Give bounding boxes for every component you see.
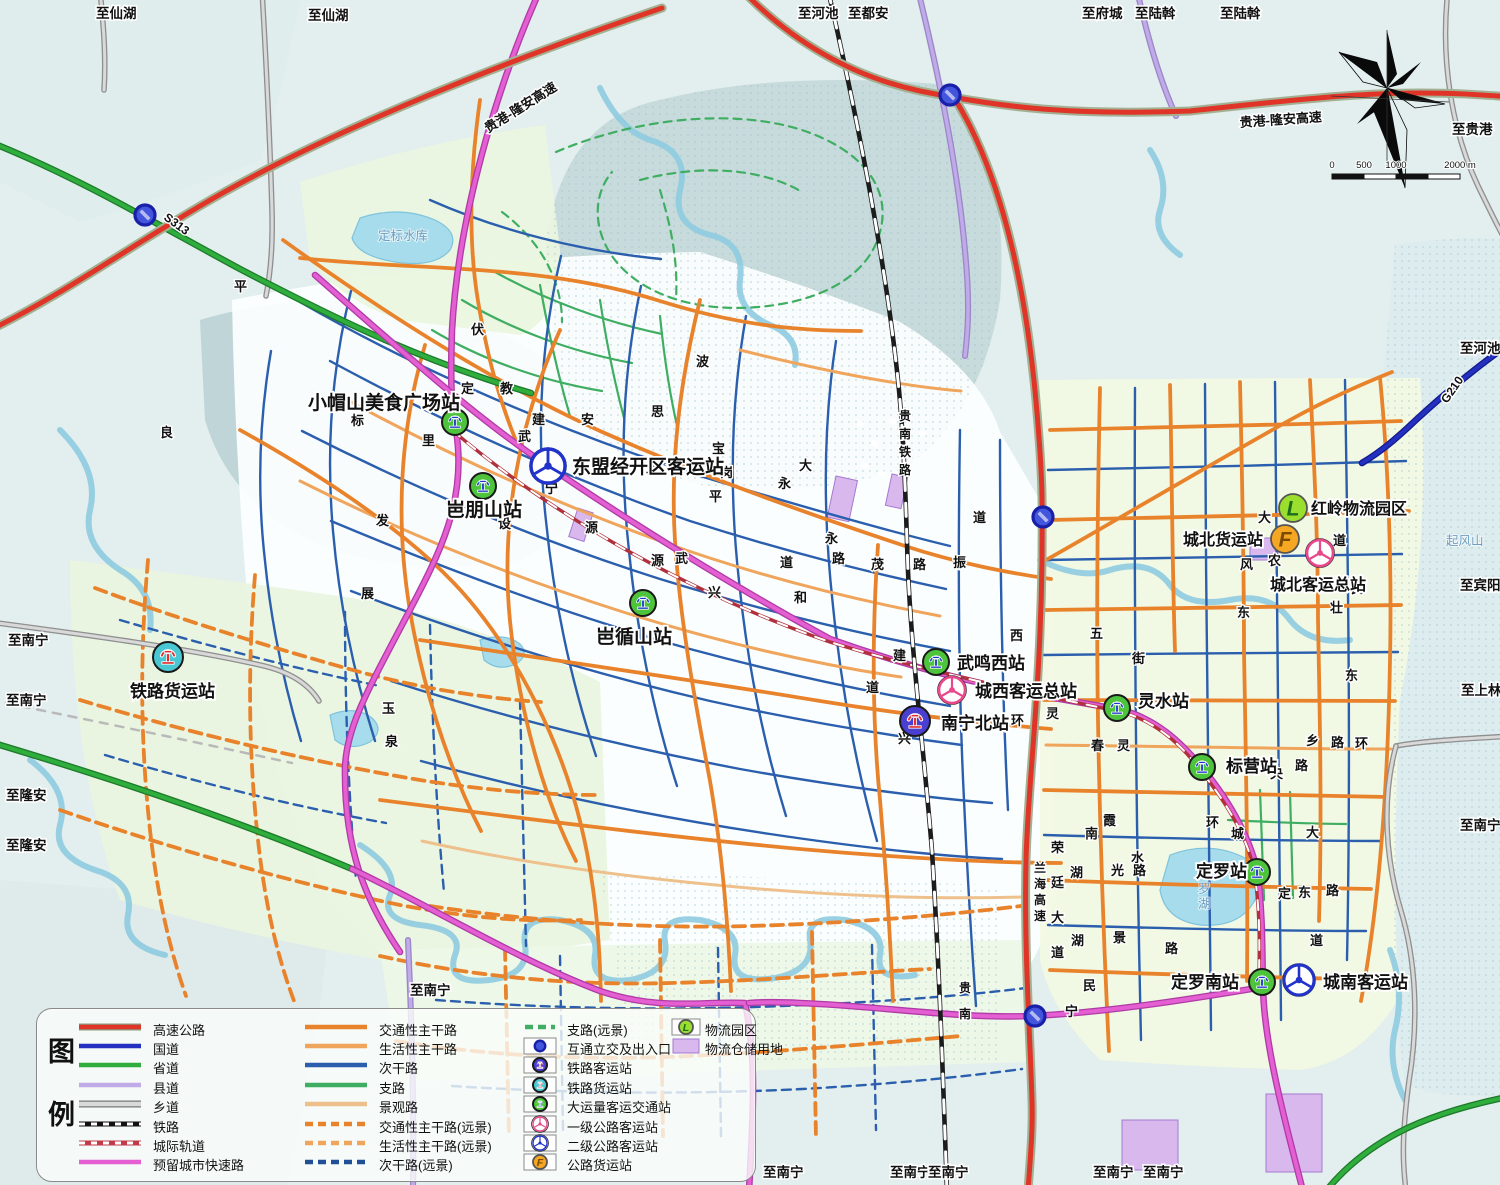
legend-item-label: 铁路 [153,1117,179,1136]
edge-destination-label: 至上林 [1461,682,1500,698]
legend-item: 城际轨道 [77,1137,143,1153]
legend-item-label: 次干路 [379,1058,418,1077]
road-name-char: 道 [1310,933,1323,948]
svg-text:500: 500 [1356,160,1372,171]
station-brt-icon[interactable] [1104,695,1130,721]
logistics-land [1122,1120,1178,1170]
legend-swatch-dash [303,1115,369,1133]
legend-item-label: 生活性主干路 [379,1039,457,1058]
legend-swatch-line [77,1076,143,1094]
legend-item: 支路 [303,1079,369,1095]
legend-swatch-rect [671,1037,701,1055]
edge-destination-label: 至贵港 [1452,121,1493,137]
interchange-icon [523,1037,557,1055]
road-name-char: 城 [1231,826,1244,841]
station-freight-icon[interactable]: F [1271,525,1299,553]
legend-item-label: 高速公路 [153,1020,205,1039]
road-name-char: 光 [1110,863,1124,878]
road-name-char: 安 [581,412,594,427]
road-name-char: 建 [893,648,906,663]
legend-item-label: 支路(远景) [567,1020,628,1039]
edge-destination-label: 至陆斡 [1220,5,1261,21]
road-name-char: 宝 [712,441,725,456]
road-name-char: 定 [460,381,474,396]
road-name-char: 泉 [385,734,399,749]
legend-item: 生活性主干路(远景) [303,1137,369,1153]
edge-destination-label: 至宾阳 [1460,577,1500,593]
road-name-char: 道 [866,680,879,695]
road-name-char: 环 [1206,815,1219,830]
station-brt-icon[interactable] [630,590,656,616]
station-label: 标营站 [1226,756,1277,776]
road-name-char: 源 [585,520,598,535]
station-label: 东盟经开区客运站 [572,455,724,478]
station-label: 南宁北站 [941,713,1009,733]
road-name-char: 东 [1237,605,1250,620]
road-name-char: 灵 [1117,738,1131,753]
legend-swatch-line [77,1018,143,1036]
legend-item: 次干路(远景) [303,1157,369,1173]
road-name-char: 波 [696,354,710,369]
edge-destination-label: 至府城 [1082,5,1123,21]
road-name-char: 湖 [1070,865,1083,880]
road-name-char: 壮 [1330,600,1343,615]
interchange-icon [1025,1006,1045,1026]
road-name-char: 路 [1295,758,1309,773]
station-label: 城西客运总站 [975,681,1077,701]
brt-icon [523,1095,557,1113]
svg-text:L: L [1287,498,1300,521]
road-name-char: 发 [375,513,390,528]
legend-item: 支路(远景) [523,1021,557,1037]
legend-swatch-line [77,1095,143,1113]
station-bus2-icon[interactable] [530,448,567,485]
station-brt-icon[interactable] [923,649,949,675]
road-name-char: 永 [824,531,839,546]
road-name-char: 平 [709,489,722,504]
interchange-icon [940,85,960,105]
station-label: 定罗站 [1196,861,1247,881]
road-name-char: 道 [973,510,986,525]
legend-item: 景观路 [303,1099,369,1115]
legend-item: 铁路 [77,1118,143,1134]
road-name-char: 教 [499,381,514,396]
legend-item: 生活性主干路 [303,1040,369,1056]
station-bus1-icon[interactable] [938,676,967,705]
bus1-icon [523,1115,557,1133]
legend-swatch-line [303,1037,369,1055]
legend-item: 交通性主干路(远景) [303,1118,369,1134]
road-name-char: 路 [1326,883,1340,898]
legend-item-label: 城际轨道 [153,1136,205,1155]
road-name-char: 路 [832,551,846,566]
road-name-char: 大 [1258,510,1271,525]
legend-item-label: 支路 [379,1078,405,1097]
road-name-char: 路 [1165,941,1179,956]
station-bus1-icon[interactable] [1306,539,1335,568]
legend-item-label: 景观路 [379,1097,418,1116]
edge-destination-label: 至河池 [798,5,839,21]
edge-destination-label: 至南宁 [1093,1164,1134,1180]
station-label: 城南客运站 [1323,972,1408,992]
road-name-char: 大 [1306,825,1319,840]
legend-item-label: 大运量客运交通站 [567,1097,671,1116]
station-label: 红岭物流园区 [1311,499,1407,518]
edge-destination-label: 至仙湖 [96,5,137,21]
road-name-char: 灵 [1046,706,1060,721]
legend-swatch-line [303,1076,369,1094]
road-name-char: 东 [1298,885,1311,900]
legend-swatch-rail [77,1115,143,1133]
svg-text:F: F [1279,529,1293,552]
legend-swatch-dash [303,1153,369,1171]
legend-item-label: 生活性主干路(远景) [379,1136,492,1155]
road-name-char: 标 [350,413,364,428]
road-name-char: 玉 [382,701,395,716]
road-name-char: 源 [651,553,664,568]
svg-text:L: L [683,1021,689,1033]
road-name-char: 民 [1083,978,1096,993]
station-brt-icon[interactable] [470,473,496,499]
road-name-char: 南 [1085,826,1098,841]
legend-title: 图例 [45,1037,72,1163]
road-name-char: 环 [1355,736,1368,751]
legend-item-label: 二级公路客运站 [567,1136,658,1155]
station-label: 灵水站 [1138,691,1189,711]
legend-item-label: 国道 [153,1039,179,1058]
legend-item: 高速公路 [77,1021,143,1037]
station-rail-freight-icon[interactable] [153,642,183,672]
road-name-char: 展 [361,586,375,601]
legend-item-label: 一级公路客运站 [567,1117,658,1136]
legend-swatch-line [77,1037,143,1055]
road-name-char: 风 [1240,557,1253,572]
water-label: 起风山 [1446,534,1484,548]
road-name-char: 春 [1090,738,1105,753]
station-label: 城北客运总站 [1270,575,1366,594]
road-name-char: 茂 [871,557,884,572]
legend-item: 县道 [77,1079,143,1095]
road-name-char: 里 [422,433,435,448]
legend-item: F公路货运站 [523,1157,557,1173]
legend-panel: 图例 高速公路国道省道县道乡道铁路城际轨道预留城市快速路交通性主干路生活性主干路… [36,1008,756,1182]
freight-icon: F [523,1153,557,1171]
interchange-icon [135,205,155,225]
road-name-char: 路 [913,557,927,572]
edge-destination-label: 至南宁 [763,1164,804,1180]
legend-item-label: 交通性主干路(远景) [379,1117,492,1136]
station-bus2-icon[interactable] [1283,964,1316,997]
station-label: 定罗南站 [1171,972,1239,992]
legend-swatch-line [77,1056,143,1074]
legend-item: 大运量客运交通站 [523,1099,557,1115]
legend-item-label: 铁路客运站 [567,1058,632,1077]
legend-swatch-dash [523,1018,557,1036]
legend-item-label: 县道 [153,1078,179,1097]
road-name-char: 东 [1345,668,1358,683]
edge-destination-label: 至河池 [1460,340,1500,356]
station-brt-icon[interactable] [1244,859,1270,885]
interchange-icon [1033,507,1053,527]
station-logistics-icon[interactable]: L [1279,494,1307,522]
station-label: 小帽山美食广场站 [308,391,460,414]
legend-item-label: 物流园区 [705,1020,757,1039]
legend-item: 物流仓储用地 [671,1040,701,1056]
hatched-terrain [545,80,1001,490]
road-name-char: 良 [160,425,173,440]
svg-text:0: 0 [1329,160,1334,171]
road-name-char: 街 [1131,651,1145,666]
bus2-icon [523,1134,557,1152]
station-rail-passenger-icon[interactable] [900,706,930,736]
edge-destination-label: 至南宁 [6,692,47,708]
road-name-char: 路 [1331,735,1345,750]
road-name-char: 平 [234,279,247,294]
legend-item-label: 互通立交及出入口 [567,1039,671,1058]
legend-swatch-rail [77,1134,143,1152]
svg-text:1000: 1000 [1385,160,1406,171]
station-brt-icon[interactable] [1249,969,1275,995]
legend-item-label: 次干路(远景) [379,1155,453,1174]
road-name-char: 霞 [1103,813,1117,828]
water-label: 定标水库 [378,228,428,243]
road-name-char: 道 [780,555,793,570]
edge-destination-label: 至仙湖 [308,7,349,23]
svg-text:F: F [537,1157,544,1169]
road-name-char: 乡 [1306,733,1319,748]
legend-item-label: 铁路货运站 [567,1078,632,1097]
legend-swatch-dash [303,1134,369,1152]
legend-swatch-line [303,1056,369,1074]
road-name-char: 建 [532,412,545,427]
legend-item-label: 公路货运站 [567,1155,632,1174]
road-name-char: 道 [1333,533,1346,548]
edge-destination-label: 至南宁 [1143,1164,1184,1180]
road-name-char: 西 [1010,628,1023,643]
legend-item: 次干路 [303,1060,369,1076]
legend-item: 互通立交及出入口 [523,1040,557,1056]
edge-destination-label: 至南宁 [928,1164,969,1180]
legend-item: L物流园区 [671,1021,701,1037]
edge-destination-label: 至都安 [848,5,889,21]
legend-swatch-line [77,1153,143,1171]
road-name-char: 定 [1277,886,1291,901]
legend-item: 省道 [77,1060,143,1076]
legend-item: 预留城市快速路 [77,1157,143,1173]
road-name-char: 五 [1090,626,1103,641]
logistics-icon: L [671,1018,701,1036]
road-name-char: 振 [953,555,966,570]
rail-freight-icon [523,1076,557,1094]
edge-destination-label: 至隆安 [6,837,47,853]
road-name-char: 和 [794,590,807,605]
road-name-char: 宁 [1065,1004,1078,1019]
svg-text:2000 m: 2000 m [1444,160,1476,171]
station-label: 武鸣西站 [957,653,1025,673]
road-name-char: 武 [518,429,531,444]
edge-destination-label: 至南宁 [8,632,49,648]
legend-item: 铁路货运站 [523,1079,557,1095]
road-name-char: 武 [675,551,688,566]
legend-item: 二级公路客运站 [523,1137,557,1153]
legend-swatch-line [303,1018,369,1036]
rail-passenger-icon [523,1056,557,1074]
road-name-char: 永 [777,476,792,491]
legend-item: 交通性主干路 [303,1021,369,1037]
legend-item-label: 物流仓储用地 [705,1039,783,1058]
station-label: 岜朋山站 [446,498,522,521]
station-label: 铁路货运站 [130,681,215,701]
road-name-char: 环 [1011,713,1024,728]
legend-item-label: 预留城市快速路 [153,1155,244,1174]
road-name-char: 思 [651,404,664,419]
legend-item-label: 乡道 [153,1097,179,1116]
station-label: 城北货运站 [1183,530,1263,549]
legend-item: 国道 [77,1040,143,1056]
map-stage: 良平伏定教标里建安思波宝岗永大平武宁华发设源武源展玉泉茂路振道西五建兴环灵春灵道… [0,0,1500,1185]
legend-item-label: 交通性主干路 [379,1020,457,1039]
legend-item-label: 省道 [153,1058,179,1077]
edge-destination-label: 至南宁 [890,1164,931,1180]
edge-destination-label: 至陆斡 [1135,5,1176,21]
road-name-char: 湖 [1071,933,1084,948]
road-name-char: 农 [1267,553,1281,568]
legend-item: 乡道 [77,1099,143,1115]
legend-item: 一级公路客运站 [523,1118,557,1134]
edge-destination-label: 至隆安 [6,787,47,803]
road-name-char: 路 [1133,863,1147,878]
road-name-char: 伏 [471,322,484,337]
road-name-char: 大 [799,458,812,473]
station-brt-icon[interactable] [1189,754,1215,780]
edge-destination-label: 至南宁 [1460,817,1500,833]
legend-item: 铁路客运站 [523,1060,557,1076]
road-name-char: 景 [1113,930,1126,945]
legend-swatch-line [303,1095,369,1113]
edge-destination-label: 至南宁 [410,982,451,998]
road-name-char: 兴 [708,585,721,600]
station-label: 岜循山站 [596,625,672,648]
road [1044,700,1395,701]
